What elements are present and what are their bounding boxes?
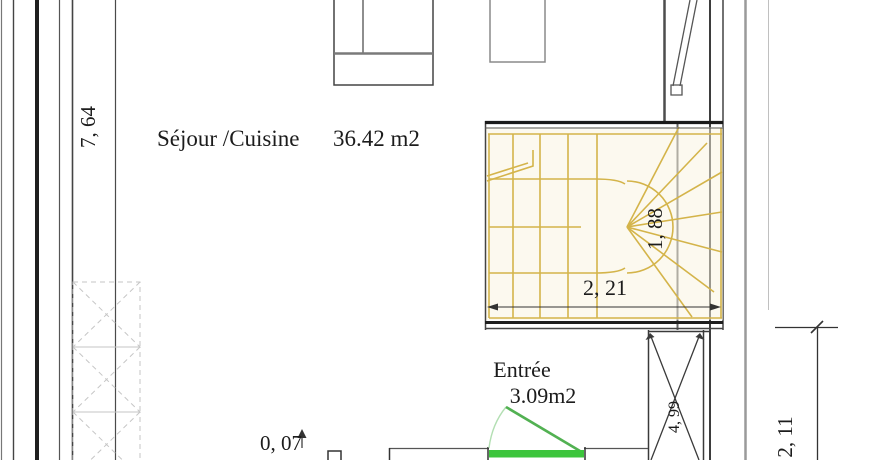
fixture-block [490, 0, 545, 62]
door-leaf-top [671, 0, 697, 95]
dimension-stair-winder: 1, 88 [643, 208, 667, 250]
entry-door [489, 407, 584, 458]
floor-plan-canvas: 7, 64 Séjour /Cuisine 36.42 m2 [0, 0, 872, 460]
bottom-wall [328, 447, 648, 460]
room-label-entree: Entrée [493, 357, 550, 382]
room-label-sejour: Séjour /Cuisine [157, 126, 299, 151]
dimension-stair-width: 2, 21 [583, 275, 627, 300]
dimension-right-lower: 2, 11 [773, 416, 797, 457]
dimension-entry-offset: 0, 07 [260, 431, 302, 455]
left-wall [2, 0, 116, 460]
dimension-shaft-depth: 4, 99 [666, 401, 683, 433]
wall-hatch-insulation [73, 282, 140, 460]
room-area-sejour: 36.42 m2 [333, 126, 420, 151]
dimension-left-height: 7, 64 [76, 106, 100, 149]
shaft-duct [646, 330, 711, 460]
kitchen-unit [334, 0, 433, 85]
room-area-entree: 3.09m2 [510, 383, 577, 408]
